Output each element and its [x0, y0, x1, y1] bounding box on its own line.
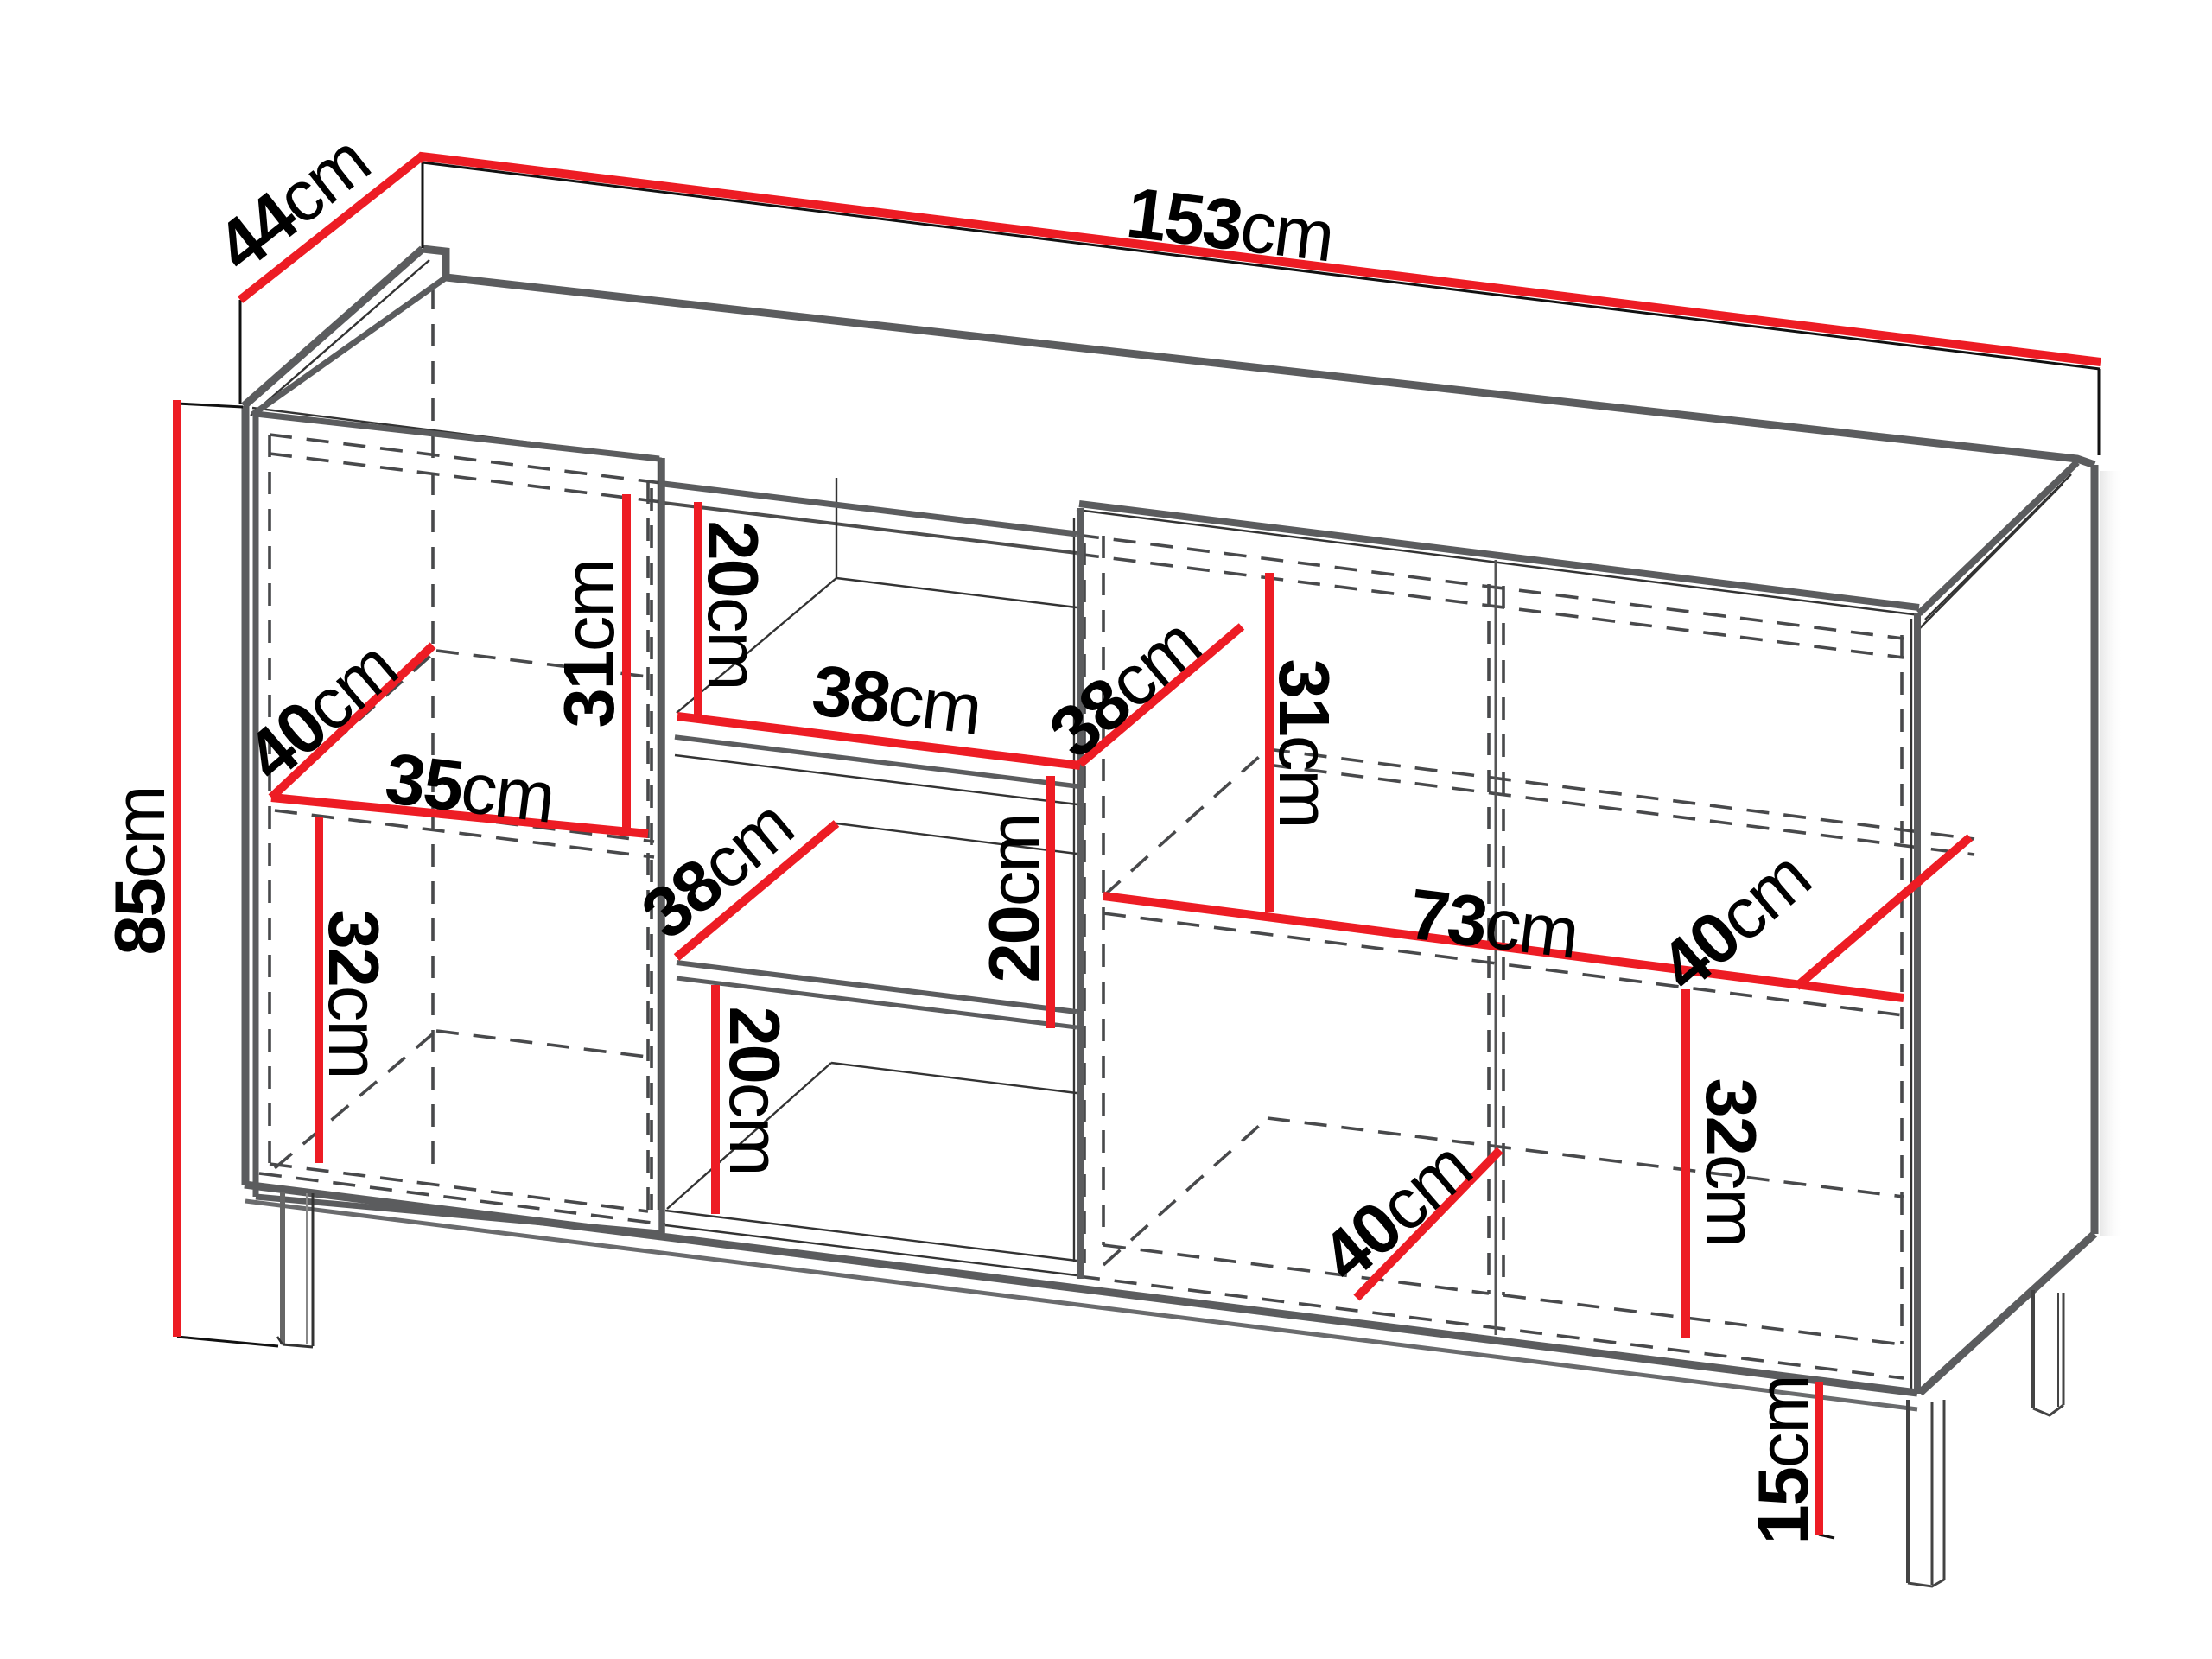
svg-text:32cm: 32cm — [1691, 1078, 1771, 1247]
svg-text:20cm: 20cm — [693, 521, 773, 690]
svg-text:31cm: 31cm — [1264, 659, 1344, 828]
svg-text:15cm: 15cm — [1743, 1376, 1823, 1545]
svg-text:32cm: 32cm — [314, 910, 394, 1078]
svg-text:85cm: 85cm — [99, 787, 180, 956]
svg-text:31cm: 31cm — [549, 560, 629, 728]
svg-text:20cm: 20cm — [974, 815, 1054, 983]
svg-text:20cm: 20cm — [715, 1007, 795, 1175]
